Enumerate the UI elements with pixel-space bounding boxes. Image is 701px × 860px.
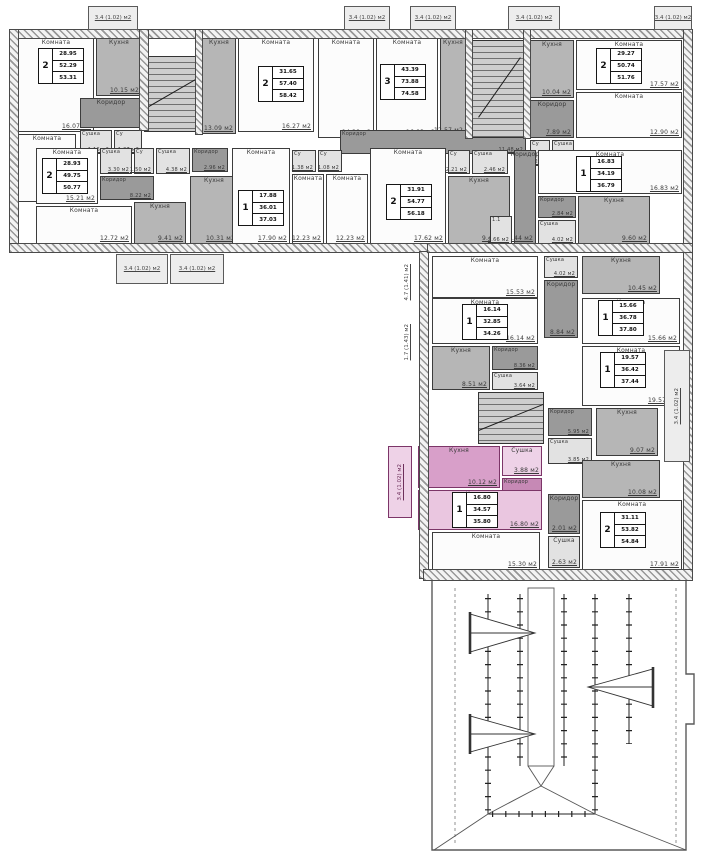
room-area: 16.83 м2 — [650, 186, 679, 193]
room-wc: Су1.08 м2 — [318, 150, 342, 172]
room-wc: Су1.38 м2 — [292, 150, 316, 172]
apartment-area-value: 35.80 — [467, 516, 497, 527]
apartment-info-box: 231.9154.7756.18 — [386, 184, 432, 220]
room-label: Коридор — [194, 150, 218, 156]
room-label: Сушка — [540, 222, 558, 228]
apartment-area-value: 36.79 — [591, 180, 621, 191]
room-area: 2.63 м2 — [552, 560, 577, 567]
apartment-area-value: 34.19 — [591, 169, 621, 181]
room-label: Кухня — [209, 40, 229, 47]
room-kitchen: Кухня13.09 м2 — [202, 38, 236, 134]
room-area: 5.95 м2 — [568, 430, 589, 436]
apartment-area-value: 53.82 — [615, 525, 645, 537]
room-label: Комната — [618, 502, 647, 509]
room-drying: Сушка2.46 м2 — [472, 150, 508, 174]
room-label: Кухня — [617, 410, 637, 417]
room-label: Коридор — [511, 152, 540, 159]
room-area: 10.08 м2 — [628, 490, 657, 497]
room-living: Комната12.23 м2 — [292, 174, 324, 244]
room-area: 4.02 м2 — [552, 238, 573, 244]
room-area: 16.80 м2 — [510, 522, 539, 529]
balcony-area-label: 3.4 (1.02) м2 — [655, 15, 691, 21]
room-label: Сушка — [82, 132, 100, 138]
apartment-room-count: 2 — [597, 49, 611, 83]
apartment-area-value: 36.42 — [615, 365, 645, 377]
apartment-info-box: 228.9349.7550.77 — [42, 158, 88, 194]
room-corridor: Коридор5.95 м2 — [548, 408, 592, 436]
room-area: 17.90 м2 — [258, 236, 287, 243]
apartment-area-value: 16.14 — [477, 305, 507, 317]
room-area: 2.46 м2 — [484, 168, 505, 174]
balcony: 3.4 (1.02) м2 — [88, 6, 138, 30]
room-corridor: Коридор2.96 м2 — [192, 148, 228, 172]
room-area: 17.62 м2 — [414, 236, 443, 243]
balcony-area-label: 3.4 (1.02) м2 — [397, 464, 403, 500]
apartment-area-value: 34.57 — [467, 505, 497, 517]
apartment-info-box: 117.8836.0137.03 — [238, 190, 284, 226]
apartment-area-value: 31.65 — [273, 67, 303, 79]
apartment-area-value: 15.66 — [613, 301, 643, 313]
balcony-area-label: 3.4 (1.02) м2 — [179, 266, 215, 272]
apartment-room-count: 1 — [239, 191, 253, 225]
room-label: Су — [294, 152, 301, 158]
room-area: 9.07 м2 — [630, 448, 655, 455]
room-area: 12.72 м2 — [100, 236, 129, 243]
room-area: 9.41 м2 — [158, 236, 183, 243]
room-label: Кухня — [451, 348, 471, 355]
apartment-area-value: 51.76 — [611, 72, 641, 83]
room-area: 1.08 м2 — [318, 166, 339, 172]
room-drying-selected[interactable]: Сушка3.88 м2 — [502, 446, 542, 476]
room-drying: Сушка4.02 м2 — [538, 220, 576, 244]
apartment-info-box: 343.3973.8874.58 — [380, 64, 426, 100]
room-area: 8.51 м2 — [462, 382, 487, 389]
room-area: 12.23 м2 — [336, 236, 365, 243]
room-area: 1.50 м2 — [130, 168, 151, 174]
room-area: 15.53 м2 — [506, 290, 535, 297]
apartment-info-box-selected[interactable]: 116.8034.5735.80 — [452, 492, 498, 528]
room-area: 10.12 м2 — [468, 480, 497, 487]
room-unit: 1.12.66 м2 — [490, 216, 512, 244]
apartment-room-count: 2 — [601, 513, 615, 547]
room-kitchen: Кухня12.57 м2 — [440, 38, 466, 136]
room-label: Сушка — [494, 374, 512, 380]
room-living: Комната15.30 м2 — [432, 532, 540, 570]
room-area: 2.66 м2 — [488, 238, 509, 244]
balcony-area-label: 3.4 (1.02) м2 — [516, 15, 552, 21]
room-corridor: Коридор8.22 м2 — [100, 176, 154, 200]
apartment-area-value: 31.11 — [615, 513, 645, 525]
room-area: 8.84 м2 — [550, 330, 575, 337]
apartment-area-value: 36.01 — [253, 203, 283, 215]
wall-segment — [10, 244, 428, 252]
apartment-area-value: 56.18 — [401, 208, 431, 219]
room-area: 8.22 м2 — [130, 194, 151, 200]
balcony-selected[interactable]: 3.4 (1.02) м2 — [388, 446, 412, 518]
apartment-area-value: 54.77 — [401, 197, 431, 209]
room-wc: Су2.21 м2 — [448, 150, 470, 174]
room-label: Комната — [394, 150, 423, 157]
apartment-area-value: 19.57 — [615, 353, 645, 365]
room-living: Комната15.53 м2 — [432, 256, 538, 298]
room-label: Кухня — [443, 40, 463, 47]
room-kitchen: Кухня10.08 м2 — [582, 460, 660, 498]
apartment-area-value: 28.95 — [53, 49, 83, 61]
apartment-area-value: 37.44 — [615, 376, 645, 387]
room-label: Коридор — [494, 348, 518, 354]
room-label: Комната — [471, 258, 500, 265]
room-label: Сушка — [102, 150, 120, 156]
room-label: Комната — [333, 176, 362, 183]
room-kitchen: Кухня9.07 м2 — [596, 408, 658, 456]
room-label: Комната — [33, 136, 62, 143]
apartment-info-box: 115.6636.7837.80 — [598, 300, 644, 336]
room-label: Комната — [42, 40, 71, 47]
room-label: Коридор — [550, 410, 574, 416]
room-area: 17.57 м2 — [650, 82, 679, 89]
balcony: 3.4 (1.02) м2 — [410, 6, 456, 30]
balcony-area-label: 1.7 (1.43) м2 — [404, 324, 410, 360]
apartment-room-count: 1 — [577, 157, 591, 191]
room-drying: Сушка2.63 м2 — [548, 536, 580, 568]
room-area: 4.38 м2 — [166, 168, 187, 174]
room-label: Сушка — [158, 150, 176, 156]
room-label: Комната — [332, 40, 361, 47]
balcony: 3.4 (1.02) м2 — [508, 6, 560, 30]
apartment-area-value: 58.42 — [273, 90, 303, 101]
room-area: 4.02 м2 — [554, 272, 575, 278]
balcony: 3.4 (1.02) м2 — [116, 254, 168, 284]
room-drying: Сушка4.02 м2 — [544, 256, 578, 278]
room-label: Комната — [247, 150, 276, 157]
room-label: Кухня — [611, 462, 631, 469]
room-area: 16.27 м2 — [282, 124, 311, 131]
wall-segment — [140, 30, 148, 130]
room-area: 13.09 м2 — [204, 126, 233, 133]
balcony: 3.4 (1.02) м2 — [170, 254, 224, 284]
room-area: 16.14 м2 — [506, 336, 535, 343]
room-kitchen: Кухня10.04 м2 — [530, 40, 574, 98]
room-label: Комната — [472, 534, 501, 541]
room-area: 3.88 м2 — [514, 468, 539, 475]
apartment-area-value: 49.75 — [57, 171, 87, 183]
apartment-area-value: 16.80 — [467, 493, 497, 505]
room-label: Кухня — [204, 178, 224, 185]
balcony: 3.4 (1.02) м2 — [664, 350, 690, 462]
room-area: 2.96 м2 — [204, 166, 225, 172]
apartment-room-count: 1 — [453, 493, 467, 527]
apartment-info-box: 116.8334.1936.79 — [576, 156, 622, 192]
room-label: Кухня — [604, 198, 624, 205]
apartment-area-value: 36.78 — [613, 313, 643, 325]
apartment-area-value: 37.03 — [253, 214, 283, 225]
room-label: Комната — [294, 176, 323, 183]
apartment-area-value: 53.31 — [53, 72, 83, 83]
apartment-area-value: 34.26 — [477, 328, 507, 339]
apartment-room-count: 1 — [463, 305, 477, 339]
room-area: 15.66 м2 — [648, 336, 677, 343]
room-corridor: Коридор — [80, 98, 142, 128]
room-kitchen: Кухня10.45 м2 — [582, 256, 660, 294]
apartment-area-value: 43.39 — [395, 65, 425, 77]
wall-segment — [684, 30, 692, 578]
balcony: 3.4 (1.02) м2 — [654, 6, 692, 30]
room-corridor: Коридор5.44 м2 — [514, 150, 536, 244]
apartment-area-value: 50.74 — [611, 61, 641, 73]
apartment-room-count: 2 — [387, 185, 401, 219]
balcony: 3.4 (1.02) м2 — [344, 6, 390, 30]
wall-segment — [424, 570, 692, 580]
room-label: Коридор — [97, 100, 126, 107]
room-label: Су — [532, 142, 539, 148]
apartment-area-value: 52.29 — [53, 61, 83, 73]
room-label: Сушка — [553, 538, 575, 545]
room-area: 3.30 м2 — [108, 168, 129, 174]
room-label: Коридор — [504, 480, 528, 486]
room-area: 9.60 м2 — [622, 236, 647, 243]
wall-segment — [428, 244, 692, 252]
room-area: 15.21 м2 — [66, 196, 95, 203]
apartment-room-count: 1 — [601, 353, 615, 387]
wall-segment — [10, 30, 692, 38]
room-label: Кухня — [469, 178, 489, 185]
room-area: 12.23 м2 — [292, 236, 321, 243]
apartment-info-box: 231.1153.8254.84 — [600, 512, 646, 548]
room-drying: Сушка4.38 м2 — [156, 148, 190, 174]
stair-flight-line — [478, 57, 521, 117]
apartment-room-count: 3 — [381, 65, 395, 99]
room-area: 2.84 м2 — [552, 212, 573, 218]
room-wc: Су1.50 м2 — [134, 148, 154, 174]
room-kitchen: Кухня9.41 м2 — [134, 202, 186, 244]
stairwell — [478, 392, 544, 444]
apartment-area-value: 54.84 — [615, 536, 645, 547]
balcony-area-label: 3.4 (1.02) м2 — [415, 15, 451, 21]
room-label: Коридор — [102, 178, 126, 184]
balcony-area-label: 3.4 (1.02) м2 — [124, 266, 160, 272]
stairwell — [472, 40, 526, 138]
room-kitchen: Кухня8.51 м2 — [432, 346, 490, 390]
stair-flight-line — [144, 74, 198, 111]
apartment-info-box: 116.1432.8534.26 — [462, 304, 508, 340]
apartment-info-box: 231.6557.4058.42 — [258, 66, 304, 102]
roof-dormer-triangles — [470, 612, 653, 754]
apartment-area-value: 28.93 — [57, 159, 87, 171]
room-living: Комната12.23 м2 — [326, 174, 368, 244]
room-area: 17.91 м2 — [650, 562, 679, 569]
apartment-area-value: 50.77 — [57, 182, 87, 193]
room-area: 10.31 м2 — [206, 236, 235, 243]
room-label: Сушка — [546, 258, 564, 264]
room-label: Коридор — [550, 496, 579, 503]
room-label: Сушка — [474, 152, 492, 158]
room-label: 1.1 — [492, 218, 501, 224]
room-label: Су — [450, 152, 457, 158]
room-living: Комната12.72 м2 — [36, 206, 132, 244]
room-label: Сушка — [554, 142, 572, 148]
room-area: 15.30 м2 — [508, 562, 537, 569]
wall-segment — [10, 30, 18, 252]
room-label: Кухня — [150, 204, 170, 211]
room-area: 8.36 м2 — [514, 364, 535, 370]
apartment-room-count: 2 — [259, 67, 273, 101]
balcony-area-label: 4.7 (1.41) м2 — [404, 264, 410, 300]
room-kitchen-selected[interactable]: Кухня10.12 м2 — [418, 446, 500, 488]
apartment-area-value: 31.91 — [401, 185, 431, 197]
room-drying: Сушка3.64 м2 — [492, 372, 538, 390]
apartment-room-count: 2 — [39, 49, 53, 83]
wall-segment — [196, 30, 202, 134]
roof-plan — [424, 574, 701, 860]
room-label: Коридор — [342, 132, 366, 138]
room-corridor: Коридор8.84 м2 — [544, 280, 578, 338]
apartment-room-count: 2 — [43, 159, 57, 193]
apartment-area-value: 57.40 — [273, 79, 303, 91]
apartment-info-box: 228.9552.2953.31 — [38, 48, 84, 84]
room-label: Кухня — [109, 40, 129, 47]
apartment-area-value: 29.27 — [611, 49, 641, 61]
room-living: Комната12.90 м2 — [576, 92, 682, 138]
room-label: Комната — [615, 94, 644, 101]
balcony-area-label: 3.4 (1.02) м2 — [349, 15, 385, 21]
room-label: Комната — [70, 208, 99, 215]
stairwell — [144, 56, 198, 132]
wall-segment — [420, 252, 428, 578]
room-label: Сушка — [511, 448, 533, 455]
room-label: Су — [116, 132, 123, 138]
room-corridor: Коридор2.84 м2 — [538, 196, 576, 218]
room-label: Сушка — [550, 440, 568, 446]
room-corridor: Коридор2.01 м2 — [548, 494, 580, 534]
room-label: Коридор — [540, 198, 564, 204]
apartment-area-value: 16.83 — [591, 157, 621, 169]
room-drying: Сушка3.30 м2 — [100, 148, 132, 174]
apartment-area-value: 74.58 — [395, 88, 425, 99]
apartment-area-value: 37.80 — [613, 324, 643, 335]
room-kitchen: Кухня10.31 м2 — [190, 176, 238, 244]
apartment-info-box: 119.5736.4237.44 — [600, 352, 646, 388]
room-kitchen: Кухня10.15 м2 — [96, 38, 142, 96]
room-corridor: Коридор7.89 м2 — [530, 100, 574, 138]
balcony-area-label: 3.4 (1.02) м2 — [674, 388, 680, 424]
apartment-area-value: 17.88 — [253, 191, 283, 203]
room-area: 1.38 м2 — [292, 166, 313, 172]
room-label: Комната — [262, 40, 291, 47]
room-area: 2.01 м2 — [552, 526, 577, 533]
apartment-info-box: 229.2750.7451.76 — [596, 48, 642, 84]
room-area: 10.45 м2 — [628, 286, 657, 293]
room-area: 10.04 м2 — [542, 90, 571, 97]
room-label: Коридор — [547, 282, 576, 289]
balcony-area-label: 3.4 (1.02) м2 — [95, 15, 131, 21]
room-area: 10.15 м2 — [110, 88, 139, 95]
room-label: Комната — [53, 150, 82, 157]
room-label: Комната — [393, 40, 422, 47]
floor-plan: Комната16.07 м2Кухня10.15 м2КоридорСушка… — [0, 0, 701, 860]
stair-flight-line — [478, 400, 544, 434]
room-label: Кухня — [449, 448, 469, 455]
room-area: 7.89 м2 — [546, 130, 571, 137]
room-label: Коридор — [538, 102, 567, 109]
wall-segment — [466, 30, 472, 138]
room-living: Комната14.28 м2 — [318, 38, 374, 138]
apartment-room-count: 1 — [599, 301, 613, 335]
room-label: Кухня — [542, 42, 562, 49]
room-area: 3.64 м2 — [514, 384, 535, 390]
room-label: Кухня — [611, 258, 631, 265]
room-area: 12.90 м2 — [650, 130, 679, 137]
room-kitchen: Кухня9.60 м2 — [578, 196, 650, 244]
apartment-area-value: 73.88 — [395, 77, 425, 89]
room-area: 2.21 м2 — [446, 168, 467, 174]
wall-segment — [524, 30, 530, 138]
room-corridor: Коридор8.36 м2 — [492, 346, 538, 370]
apartment-area-value: 32.85 — [477, 317, 507, 329]
room-label: Су — [320, 152, 327, 158]
room-label: Су — [136, 150, 143, 156]
